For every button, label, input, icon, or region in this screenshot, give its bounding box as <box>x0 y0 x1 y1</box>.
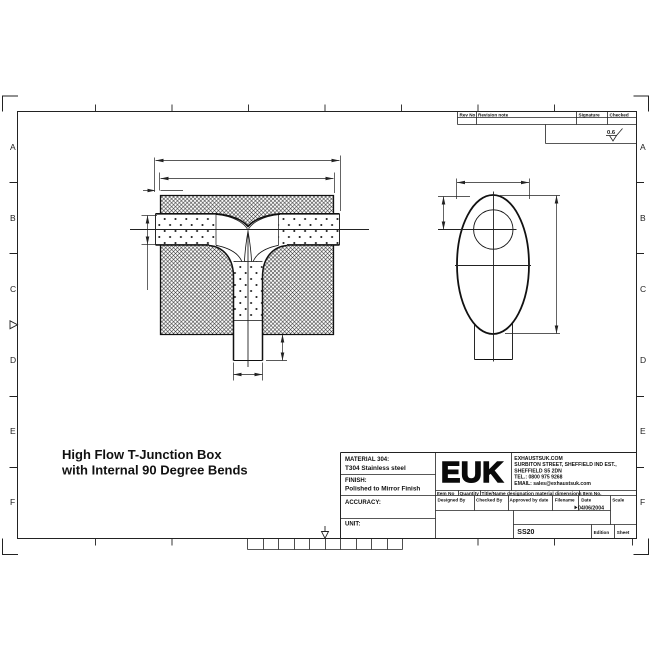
svg-text:F: F <box>10 497 15 507</box>
svg-text:Edition: Edition <box>594 530 610 535</box>
svg-text:04/06/2004: 04/06/2004 <box>578 505 604 511</box>
svg-text:Filename: Filename <box>555 497 575 502</box>
svg-text:B: B <box>10 213 16 223</box>
svg-text:FINISH:: FINISH: <box>345 478 367 484</box>
svg-text:ACCURACY:: ACCURACY: <box>345 500 381 506</box>
svg-text:Polished to Mirror Finish: Polished to Mirror Finish <box>345 485 420 492</box>
svg-text:Title/Name designation materia: Title/Name designation material dimensio… <box>482 491 582 497</box>
svg-text:D: D <box>640 355 646 365</box>
svg-text:TEL.: 0800 975 9268: TEL.: 0800 975 9268 <box>514 475 562 481</box>
svg-text:Checked By: Checked By <box>476 497 503 502</box>
svg-text:EXHAUSTSUK.COM: EXHAUSTSUK.COM <box>514 456 562 462</box>
svg-text:Signature: Signature <box>579 112 601 117</box>
svg-text:Revision note: Revision note <box>478 112 509 117</box>
svg-text:D: D <box>10 355 16 365</box>
svg-text:Rev No: Rev No <box>460 112 476 117</box>
svg-text:with Internal 90 Degree Bends: with Internal 90 Degree Bends <box>61 462 248 477</box>
svg-text:Item No.: Item No. <box>583 491 602 497</box>
svg-text:MATERIAL 304:: MATERIAL 304: <box>345 457 389 463</box>
svg-text:EMAIL: sales@exhaustsuk.com: EMAIL: sales@exhaustsuk.com <box>514 481 591 487</box>
svg-text:SS20: SS20 <box>517 529 534 536</box>
svg-text:Item No: Item No <box>437 491 455 497</box>
svg-text:A: A <box>640 142 646 152</box>
svg-text:High Flow T-Junction Box: High Flow T-Junction Box <box>62 447 222 462</box>
svg-text:Sheet: Sheet <box>617 530 630 535</box>
svg-text:Designed By: Designed By <box>438 497 466 502</box>
svg-text:A: A <box>10 142 16 152</box>
svg-text:T304 Stainless steel: T304 Stainless steel <box>345 465 406 472</box>
svg-text:C: C <box>640 284 646 294</box>
svg-text:UNIT:: UNIT: <box>345 522 360 528</box>
svg-text:C: C <box>10 284 16 294</box>
svg-text:Approved by date: Approved by date <box>510 497 549 502</box>
svg-text:SHEFFIELD S5 2DN: SHEFFIELD S5 2DN <box>514 469 562 475</box>
svg-text:SURBITON STREET, SHEFFIELD IND: SURBITON STREET, SHEFFIELD IND EST., <box>514 462 617 468</box>
svg-text:B: B <box>640 213 646 223</box>
svg-text:E: E <box>640 426 646 436</box>
svg-text:EUK: EUK <box>441 457 504 489</box>
svg-text:F: F <box>640 497 645 507</box>
svg-text:E: E <box>10 426 16 436</box>
svg-text:Scale: Scale <box>612 497 624 502</box>
svg-text:Quantity: Quantity <box>460 491 480 497</box>
svg-text:Date: Date <box>581 497 591 502</box>
svg-text:Checked: Checked <box>610 112 629 117</box>
